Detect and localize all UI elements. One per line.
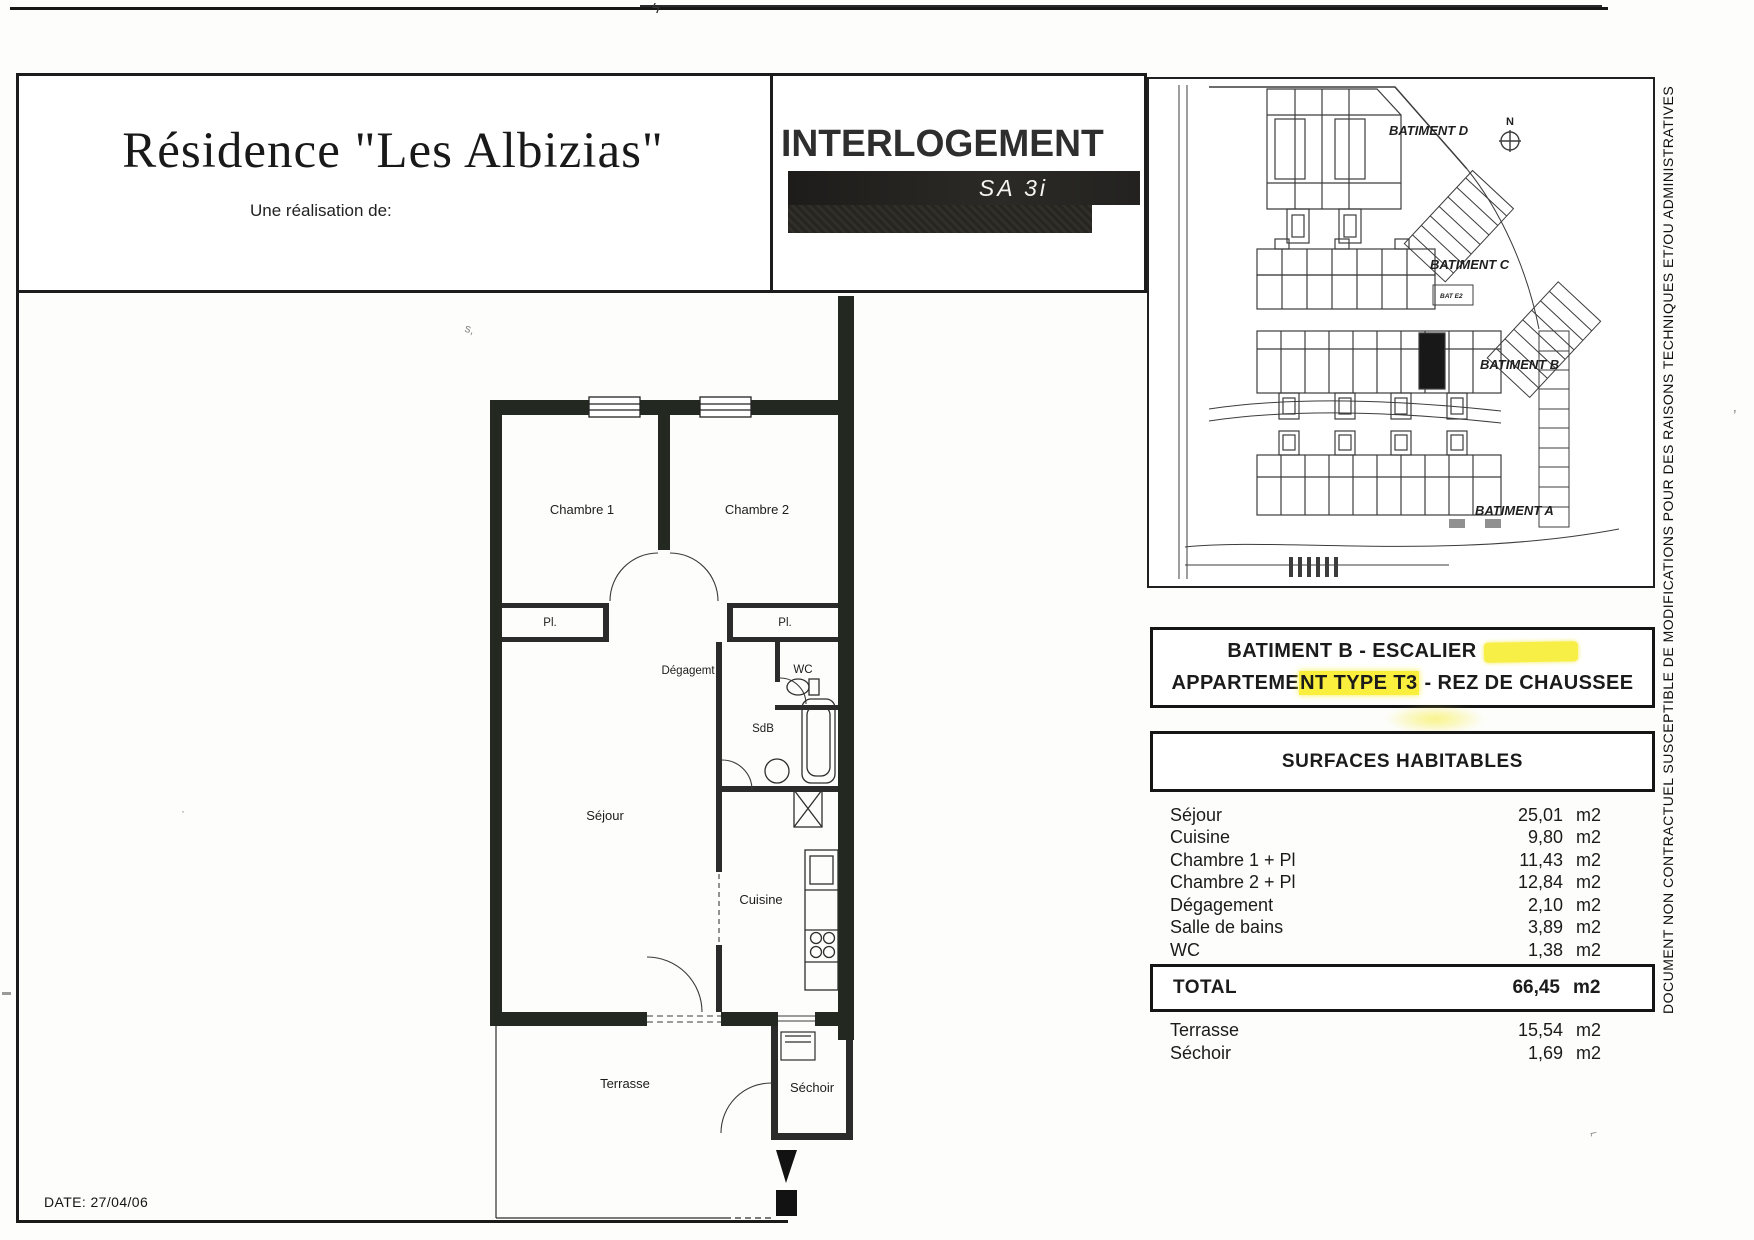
surface-row-value: 9,80 — [1499, 827, 1563, 848]
highlight-redaction — [1483, 641, 1577, 663]
surfaces-rows: Séjour 25,01 m2 Cuisine 9,80 m2 Chambre … — [1150, 804, 1655, 962]
north-indicator: N — [1506, 116, 1514, 128]
surface-row-unit: m2 — [1576, 872, 1612, 893]
room-label-placard1: Pl. — [543, 617, 556, 629]
scan-artifact: ϟ — [652, 0, 660, 17]
surface-row: Chambre 1 + Pl 11,43 m2 — [1150, 849, 1655, 872]
surface-row-unit: m2 — [1576, 917, 1612, 938]
site-label-batiment-c: BATIMENT C — [1430, 257, 1510, 272]
realisation-label: Une réalisation de: — [250, 201, 392, 221]
surface-row-value: 11,43 — [1499, 850, 1563, 871]
surface-row: Chambre 2 + Pl 12,84 m2 — [1150, 872, 1655, 895]
logo-subtitle: SA 3i — [788, 171, 1140, 205]
logo-dark-bar-2 — [788, 205, 1092, 233]
annex-row-unit: m2 — [1576, 1043, 1612, 1064]
surface-row-unit: m2 — [1576, 895, 1612, 916]
residence-title: Résidence "Les Albizias" — [16, 122, 770, 180]
surface-row-value: 1,38 — [1499, 940, 1563, 961]
surface-row-unit: m2 — [1576, 850, 1612, 871]
total-row: TOTAL 66,45 m2 — [1150, 964, 1655, 1012]
annex-row-value: 15,54 — [1499, 1020, 1563, 1041]
surfaces-header-box: SURFACES HABITABLES — [1150, 731, 1655, 792]
site-tag-bat-e2: BAT E2 — [1440, 293, 1463, 300]
date-label: DATE: 27/04/06 — [44, 1194, 148, 1210]
room-label-placard2: Pl. — [778, 617, 791, 629]
apartment-type-prefix: APPARTEME — [1171, 672, 1299, 694]
site-plan: N BATIMENT D BATIMENT C BATIMENT B BATIM… — [1147, 77, 1655, 588]
scan-artifact: · — [181, 804, 185, 818]
legal-disclaimer-vertical: DOCUMENT NON CONTRACTUEL SUSCEPTIBLE DE … — [1660, 90, 1690, 1014]
interlogement-logo-text: INTERLOGEMENT — [781, 123, 1104, 166]
scan-artifact: ’ — [1733, 408, 1737, 426]
surface-row: Dégagement 2,10 m2 — [1150, 894, 1655, 917]
floor-plan: Chambre 1 Chambre 2 Pl. Pl. Dégagemt WC … — [485, 290, 860, 1235]
annex-row-label: Terrasse — [1170, 1020, 1499, 1041]
total-value: 66,45 — [1496, 977, 1560, 999]
header-divider — [770, 73, 773, 293]
apartment-title-box: BATIMENT B - ESCALIER APPARTEMENT TYPE T… — [1150, 627, 1655, 708]
room-label-sejour: Séjour — [586, 808, 624, 823]
room-label-degagement: Dégagemt — [661, 665, 715, 677]
surface-row-label: Chambre 2 + Pl — [1170, 872, 1499, 893]
surface-row-unit: m2 — [1576, 940, 1612, 961]
surface-row-label: Chambre 1 + Pl — [1170, 850, 1499, 871]
scan-top-line — [10, 7, 1608, 10]
scan-artifact: s, — [463, 321, 476, 337]
total-label: TOTAL — [1173, 977, 1496, 999]
annex-row: Terrasse 15,54 m2 — [1150, 1019, 1655, 1042]
scanned-document-page: { "header": { "title": "Résidence \"Les … — [0, 0, 1754, 1240]
surface-row-label: Séjour — [1170, 805, 1499, 826]
highlighter-smudge — [1385, 704, 1485, 734]
surface-row-unit: m2 — [1576, 827, 1612, 848]
surface-row-value: 3,89 — [1499, 917, 1563, 938]
surface-row-value: 2,10 — [1499, 895, 1563, 916]
logo-dark-bar: SA 3i — [788, 171, 1140, 205]
surface-row-label: Salle de bains — [1170, 917, 1499, 938]
annex-rows: Terrasse 15,54 m2 Séchoir 1,69 m2 — [1150, 1019, 1655, 1065]
annex-row-label: Séchoir — [1170, 1043, 1499, 1064]
site-label-batiment-a: BATIMENT A — [1475, 503, 1554, 518]
room-label-sdb: SdB — [752, 723, 774, 735]
room-label-sechoir: Séchoir — [790, 1080, 835, 1095]
apartment-line2: APPARTEMENT TYPE T3 - REZ DE CHAUSSEE — [1153, 673, 1652, 694]
room-label-chambre2: Chambre 2 — [725, 502, 789, 517]
apartment-type-highlight: NT TYPE T3 — [1299, 671, 1418, 695]
surface-row-value: 12,84 — [1499, 872, 1563, 893]
surface-row-label: Cuisine — [1170, 827, 1499, 848]
scan-artifact: ⌐ — [1589, 1125, 1599, 1140]
apartment-line1: BATIMENT B - ESCALIER — [1153, 641, 1652, 662]
annex-row: Séchoir 1,69 m2 — [1150, 1042, 1655, 1065]
surface-row-unit: m2 — [1576, 805, 1612, 826]
site-label-batiment-d: BATIMENT D — [1389, 123, 1469, 138]
site-plan-drawing: N BATIMENT D BATIMENT C BATIMENT B BATIM… — [1149, 79, 1653, 586]
surface-row: Séjour 25,01 m2 — [1150, 804, 1655, 827]
scan-top-line-2 — [640, 5, 1602, 7]
room-label-chambre1: Chambre 1 — [550, 502, 614, 517]
room-label-wc: WC — [793, 664, 812, 676]
scan-artifact — [2, 992, 11, 995]
surface-row: Salle de bains 3,89 m2 — [1150, 917, 1655, 940]
floor-plan-drawing: Chambre 1 Chambre 2 Pl. Pl. Dégagemt WC … — [485, 290, 860, 1230]
annex-row-unit: m2 — [1576, 1020, 1612, 1041]
batiment-escalier-label: BATIMENT B - ESCALIER — [1227, 641, 1476, 662]
surface-row: WC 1,38 m2 — [1150, 939, 1655, 962]
room-label-cuisine: Cuisine — [739, 892, 782, 907]
room-label-terrasse: Terrasse — [600, 1076, 650, 1091]
site-label-batiment-b: BATIMENT B — [1480, 357, 1559, 372]
surface-row-label: WC — [1170, 940, 1499, 961]
surface-row: Cuisine 9,80 m2 — [1150, 827, 1655, 850]
apartment-floor-label: - REZ DE CHAUSSEE — [1424, 672, 1633, 694]
surface-row-value: 25,01 — [1499, 805, 1563, 826]
total-unit: m2 — [1573, 977, 1609, 999]
annex-row-value: 1,69 — [1499, 1043, 1563, 1064]
surface-row-label: Dégagement — [1170, 895, 1499, 916]
surfaces-header-label: SURFACES HABITABLES — [1282, 751, 1523, 773]
